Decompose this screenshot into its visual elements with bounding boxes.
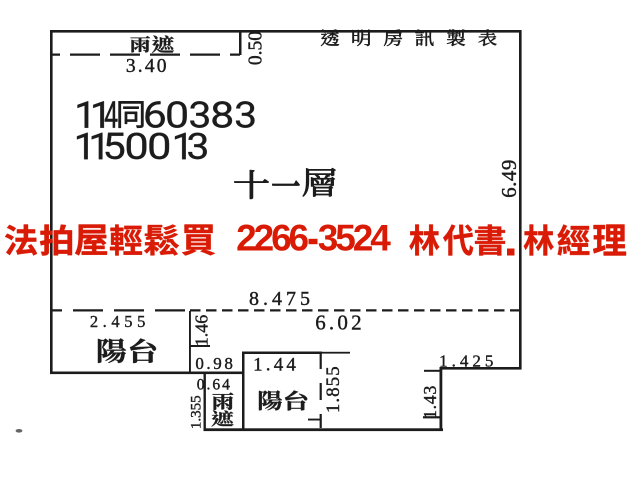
svg-text:6.49: 6.49: [497, 159, 521, 198]
svg-text:1.855: 1.855: [323, 365, 344, 413]
svg-text:1.355: 1.355: [189, 395, 205, 429]
svg-text:0.64: 0.64: [197, 377, 232, 394]
svg-text:8.475: 8.475: [249, 288, 314, 310]
svg-text:0.98: 0.98: [195, 354, 235, 373]
svg-text:1.44: 1.44: [253, 354, 299, 375]
svg-text:6.02: 6.02: [315, 311, 365, 335]
svg-text:1.46: 1.46: [192, 315, 212, 347]
svg-text:3.40: 3.40: [126, 56, 169, 77]
svg-text:2.455: 2.455: [90, 312, 150, 331]
svg-text:1.425: 1.425: [439, 351, 497, 370]
svg-text:4: 4: [370, 217, 391, 258]
svg-text:1.43: 1.43: [420, 385, 440, 419]
svg-text:6: 6: [289, 217, 310, 258]
svg-text:0.50: 0.50: [246, 31, 267, 65]
